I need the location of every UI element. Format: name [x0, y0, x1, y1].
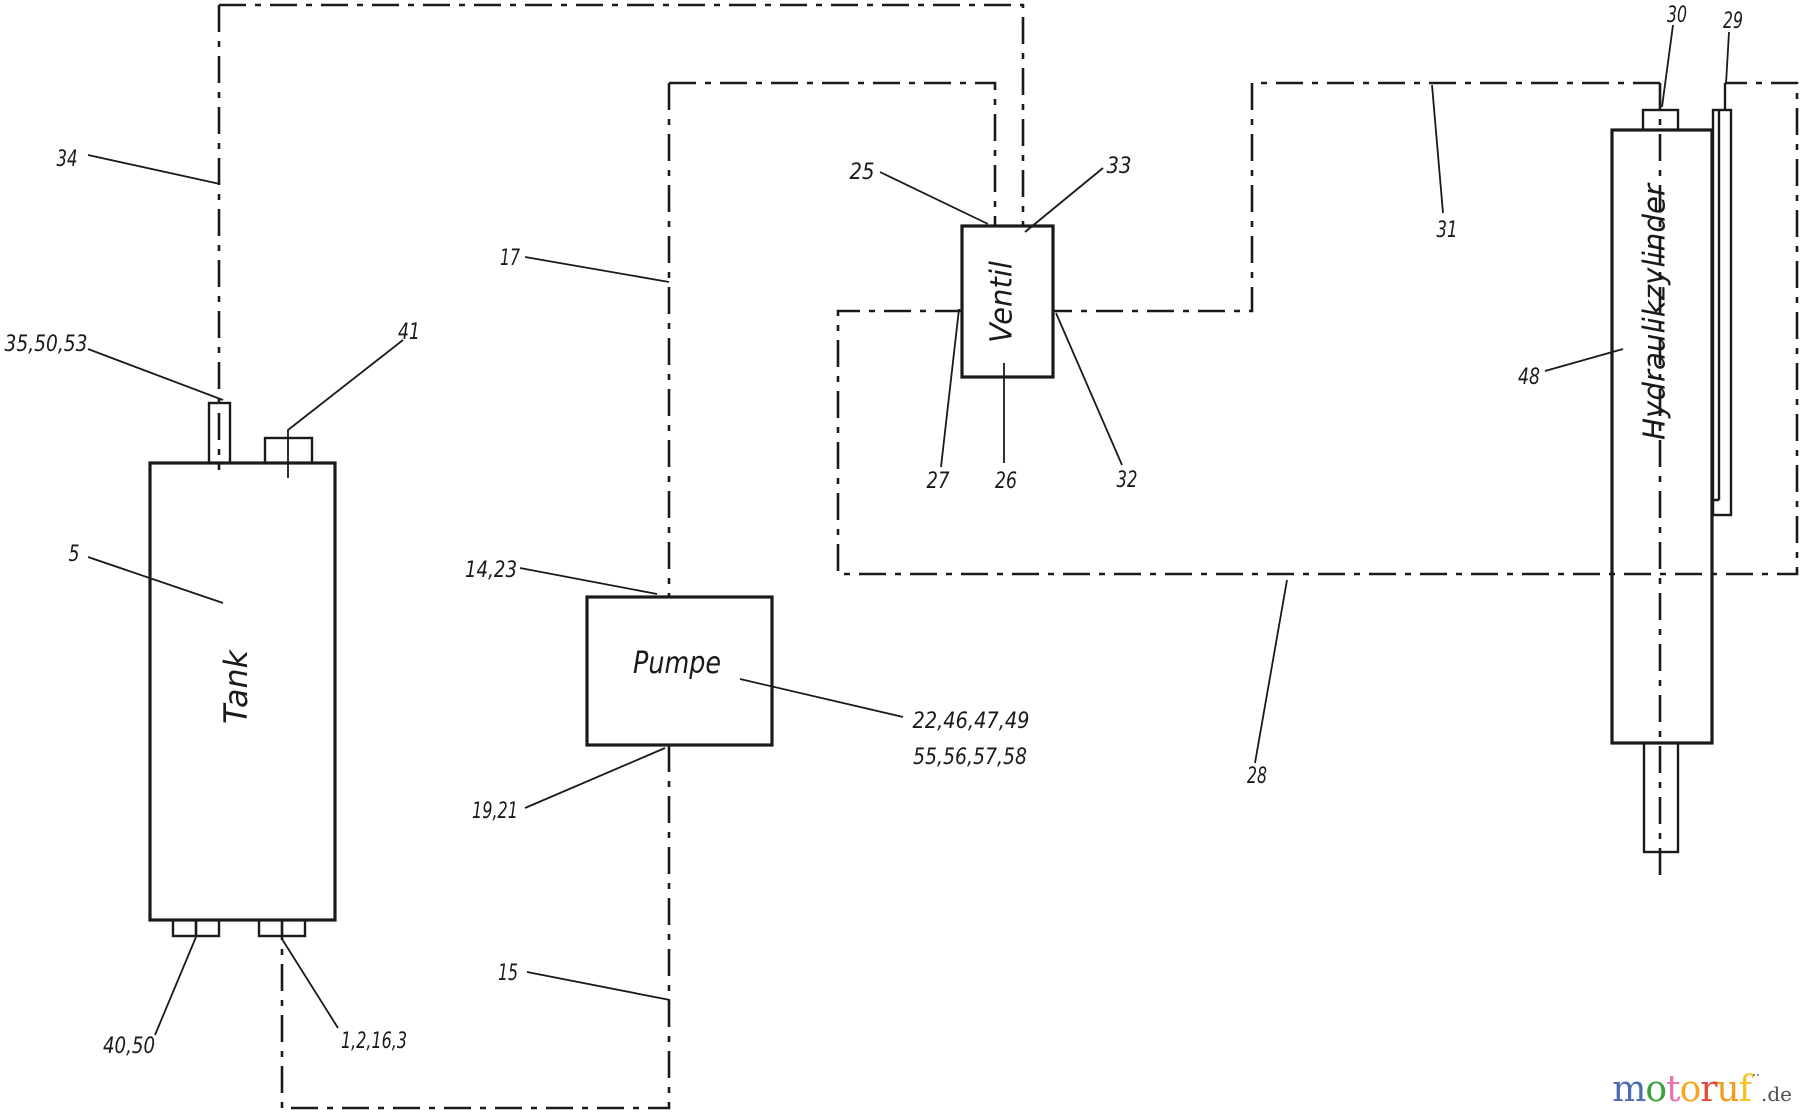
valve-label: Ventil	[985, 260, 1020, 343]
leader-35-50-53	[88, 349, 223, 400]
ref-label-40-50: 40,50	[103, 1034, 155, 1059]
ref-label-15: 15	[498, 961, 518, 986]
ref-label-25: 25	[850, 160, 875, 185]
component-shapes	[150, 110, 1731, 936]
logo-letter: m	[1612, 1069, 1645, 1110]
leader-33	[1025, 168, 1103, 232]
ref-label-33: 33	[1107, 154, 1132, 179]
leader-1-2-16-3	[282, 939, 338, 1028]
logo-domain-suffix: .de	[1761, 1082, 1792, 1106]
leader-29	[1726, 32, 1729, 84]
ref-label-27: 27	[927, 469, 950, 494]
leader-22-46-47-49	[740, 679, 903, 717]
pipe-top-tank-to-valve	[219, 5, 1023, 226]
ref-label-32: 32	[1117, 468, 1138, 493]
leader-5	[88, 557, 223, 603]
component-labels: Tank Pumpe Ventil Hydraulikzylinder	[217, 182, 1673, 724]
ref-label-34: 34	[57, 147, 78, 172]
ref-label-1-2-16-3: 1,2,16,3	[341, 1029, 407, 1054]
leader-17	[525, 257, 669, 282]
pump-label: Pumpe	[633, 646, 721, 681]
leader-31	[1432, 85, 1443, 213]
ref-label-41: 41	[398, 320, 420, 345]
ref-label-35-50-53: 35,50,53	[5, 332, 88, 357]
ref-label-17: 17	[500, 246, 520, 271]
ref-label-29: 29	[1723, 9, 1743, 34]
motoruf-logo: motoruf¨.de	[1612, 1072, 1792, 1108]
cylinder-label: Hydraulikzylinder	[1638, 182, 1673, 440]
leader-28	[1255, 580, 1287, 763]
tank-bottom-fitting-left-b	[196, 920, 219, 936]
pipe-lines	[219, 5, 1797, 1108]
hydraulic-schematic: 34 35,50,53 41 5 40,50 1,2,16,3 15 17 14…	[0, 0, 1800, 1114]
ref-label-5: 5	[69, 542, 80, 567]
logo-letter: t	[1666, 1069, 1679, 1110]
leader-25	[880, 172, 988, 224]
leader-19-21	[525, 748, 665, 808]
ref-label-26: 26	[995, 469, 1017, 494]
tank-label: Tank	[217, 649, 255, 724]
tank-bottom-fitting-right-b	[282, 920, 305, 936]
leader-34	[88, 155, 220, 184]
tank-bottom-fitting-right-a	[259, 920, 282, 936]
leader-30	[1662, 25, 1673, 107]
logo-letter: f	[1739, 1069, 1751, 1110]
ref-label-48: 48	[1518, 365, 1540, 390]
tank-bottom-fitting-left-a	[173, 920, 196, 936]
ref-label-14-23: 14,23	[465, 558, 517, 583]
leader-32	[1056, 313, 1122, 465]
leader-41	[288, 340, 403, 478]
leader-40-50	[155, 937, 196, 1035]
logo-letter: u	[1716, 1069, 1738, 1110]
ref-label-55-56-57-58: 55,56,57,58	[913, 745, 1027, 770]
logo-letter: o	[1645, 1069, 1666, 1110]
ref-label-31: 31	[1437, 218, 1458, 243]
ref-label-22-46-47-49: 22,46,47,49	[913, 709, 1030, 734]
logo-letter: r	[1700, 1069, 1716, 1110]
leader-14-23	[520, 568, 657, 594]
rod-side-tube	[1713, 110, 1731, 515]
ref-label-28: 28	[1247, 764, 1267, 789]
logo-letter: o	[1680, 1069, 1701, 1110]
pipe-valve-right-to-cylinder	[1053, 83, 1660, 311]
reference-labels: 34 35,50,53 41 5 40,50 1,2,16,3 15 17 14…	[5, 3, 1744, 1059]
ref-label-19-21: 19,21	[472, 799, 518, 824]
leader-15	[527, 972, 670, 1000]
logo-trademark: ¨	[1751, 1070, 1761, 1094]
leader-27	[941, 309, 959, 467]
ref-label-30: 30	[1667, 3, 1687, 28]
